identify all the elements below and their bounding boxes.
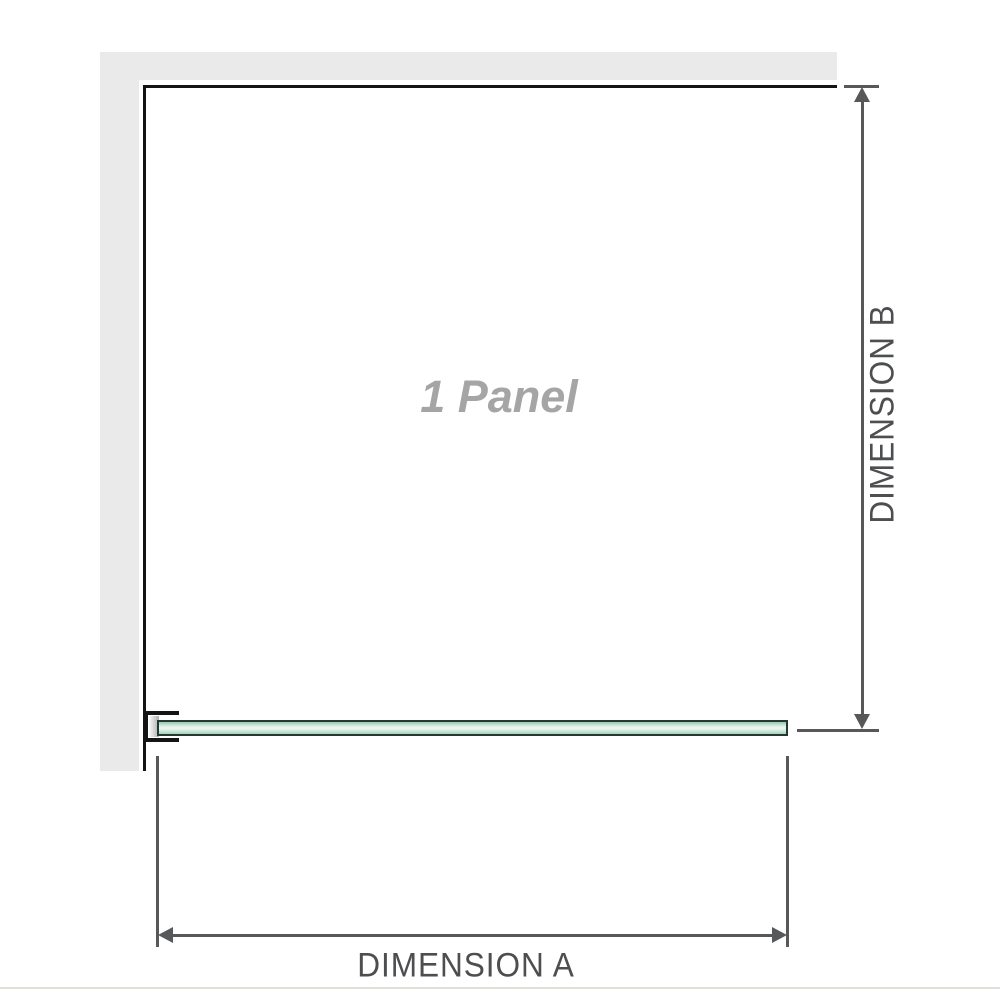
arrow-left-icon: [158, 927, 173, 943]
dimension-a-extension-left: [156, 756, 159, 947]
dimension-b-tick-bottom: [797, 729, 879, 732]
glass-panel: [157, 720, 788, 736]
panel-count-label: 1 Panel: [420, 371, 578, 423]
page-divider-line: [0, 987, 1000, 989]
shower-panel-diagram: DIMENSION B DIMENSION A 1 Panel: [0, 0, 1000, 1000]
dimension-a-extension-right: [786, 756, 789, 947]
arrow-right-icon: [772, 927, 787, 943]
dimension-b-label: DIMENSION B: [864, 304, 903, 523]
dimension-a-label: DIMENSION A: [357, 947, 575, 986]
dimension-a-line: [168, 934, 776, 937]
wall-inner-edge-top: [143, 85, 837, 88]
wall-top: [100, 52, 837, 80]
wall-left: [100, 52, 139, 771]
arrow-up-icon: [854, 87, 870, 102]
wall-inner-edge-left: [143, 85, 146, 771]
arrow-down-icon: [854, 714, 870, 729]
